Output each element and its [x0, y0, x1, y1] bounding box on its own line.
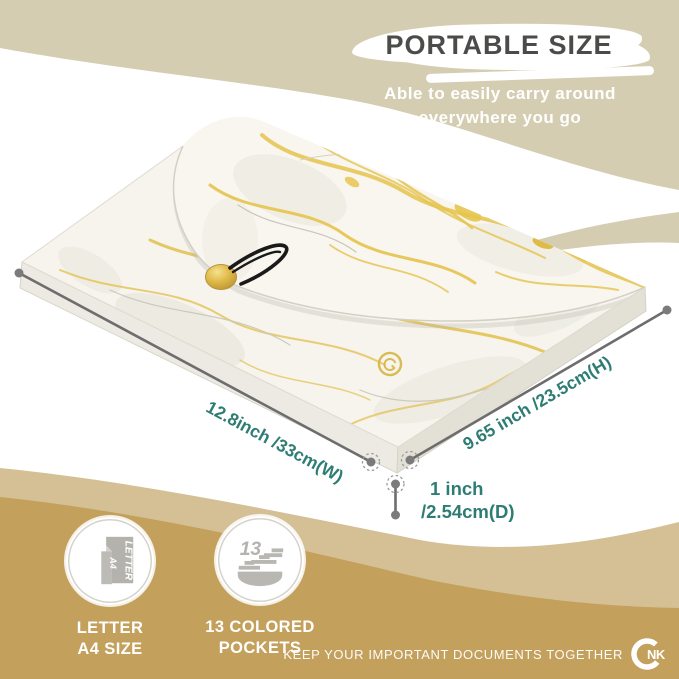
- subtitle: Able to easily carry around everywhere y…: [330, 82, 670, 130]
- footer-tagline: KEEP YOUR IMPORTANT DOCUMENTS TOGETHER: [283, 647, 623, 662]
- letter-a4-icon: LETTER A4: [81, 532, 139, 590]
- icon-text-13: 13: [240, 539, 262, 560]
- pockets-icon: 13: [231, 531, 289, 589]
- icon-text-letter: LETTER: [122, 541, 133, 581]
- title-banner: PORTABLE SIZE: [348, 20, 650, 72]
- brand-logo-icon: NK: [630, 634, 670, 674]
- depth-dimension-label-line1: 1 inch: [430, 478, 483, 499]
- letter-a4-badge-circle: LETTER A4: [66, 517, 154, 605]
- depth-dimension-label-line2: /2.54cm(D): [421, 501, 515, 522]
- page-title: PORTABLE SIZE: [348, 20, 650, 72]
- product-infographic: 12.8inch /33cm(W) 9.65 inch /23.5cm(H) 1…: [0, 0, 679, 679]
- subtitle-line1: Able to easily carry around: [330, 82, 670, 106]
- subtitle-line2: everywhere you go: [330, 106, 670, 130]
- icon-text-a4: A4: [108, 556, 118, 569]
- footer: KEEP YOUR IMPORTANT DOCUMENTS TOGETHER N…: [0, 634, 670, 674]
- pockets-badge-circle: 13: [216, 516, 304, 604]
- brand-logo-text: NK: [647, 647, 666, 662]
